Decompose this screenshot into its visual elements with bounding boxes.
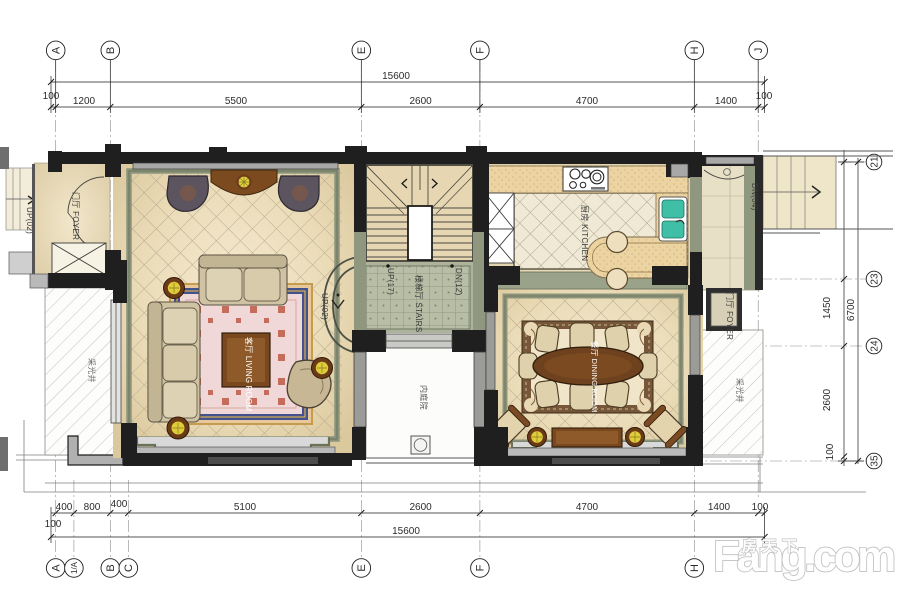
svg-text:21: 21 (870, 156, 881, 168)
svg-text:1400: 1400 (708, 502, 731, 513)
svg-text:5500: 5500 (225, 96, 248, 107)
svg-text:35: 35 (870, 455, 881, 467)
svg-text:2600: 2600 (409, 96, 432, 107)
svg-text:门厅 FOYER: 门厅 FOYER (71, 192, 81, 240)
svg-text:餐厅 DINING ROOM: 餐厅 DINING ROOM (590, 341, 599, 413)
svg-text:A: A (50, 564, 62, 572)
svg-text:房天下: 房天下 (742, 537, 802, 555)
svg-text:采光井: 采光井 (87, 358, 97, 383)
svg-text:15600: 15600 (382, 71, 410, 82)
svg-text:客厅 LIVING ROOM: 客厅 LIVING ROOM (244, 337, 254, 411)
svg-text:DN(04): DN(04) (750, 183, 759, 211)
svg-text:H: H (689, 564, 701, 572)
svg-text:内庭院: 内庭院 (419, 385, 429, 410)
svg-text:J: J (753, 48, 765, 54)
svg-text:24: 24 (870, 340, 881, 352)
svg-text:400: 400 (56, 502, 73, 513)
svg-text:UP(17): UP(17) (386, 268, 395, 295)
svg-text:UP(02): UP(02) (320, 293, 329, 320)
svg-text:100: 100 (43, 91, 60, 102)
svg-text:F: F (475, 564, 487, 571)
svg-text:4700: 4700 (576, 96, 599, 107)
svg-text:A: A (51, 46, 63, 54)
svg-text:6700: 6700 (846, 298, 857, 321)
svg-text:5100: 5100 (234, 502, 257, 513)
svg-text:400: 400 (111, 499, 128, 510)
svg-text:100: 100 (756, 91, 773, 102)
svg-text:2600: 2600 (409, 502, 432, 513)
svg-text:楼梯厅 STAIRS: 楼梯厅 STAIRS (414, 275, 424, 333)
svg-text:2600: 2600 (822, 388, 833, 411)
svg-text:厨房 KITCHEN: 厨房 KITCHEN (580, 205, 590, 261)
svg-text:C: C (123, 564, 135, 572)
svg-text:E: E (356, 47, 368, 54)
svg-text:E: E (356, 564, 368, 571)
svg-text:1200: 1200 (73, 96, 96, 107)
svg-text:23: 23 (870, 273, 881, 285)
svg-text:B: B (105, 564, 117, 571)
svg-text:800: 800 (84, 502, 101, 513)
svg-text:100: 100 (752, 502, 769, 513)
svg-text:采光井: 采光井 (735, 378, 745, 403)
svg-text:15600: 15600 (392, 526, 420, 537)
svg-text:4700: 4700 (576, 502, 599, 513)
svg-text:1400: 1400 (715, 96, 738, 107)
svg-text:100: 100 (45, 519, 62, 530)
svg-text:门厅 FOYER: 门厅 FOYER (725, 292, 735, 340)
svg-text:100: 100 (825, 443, 836, 460)
svg-text:H: H (689, 46, 701, 54)
svg-text:B: B (105, 47, 117, 54)
svg-text:F: F (475, 47, 487, 54)
svg-text:DN(12): DN(12) (454, 268, 463, 296)
svg-text:1450: 1450 (822, 296, 833, 319)
svg-text:Fang.com: Fang.com (713, 532, 894, 581)
svg-text:1/A: 1/A (70, 561, 79, 574)
